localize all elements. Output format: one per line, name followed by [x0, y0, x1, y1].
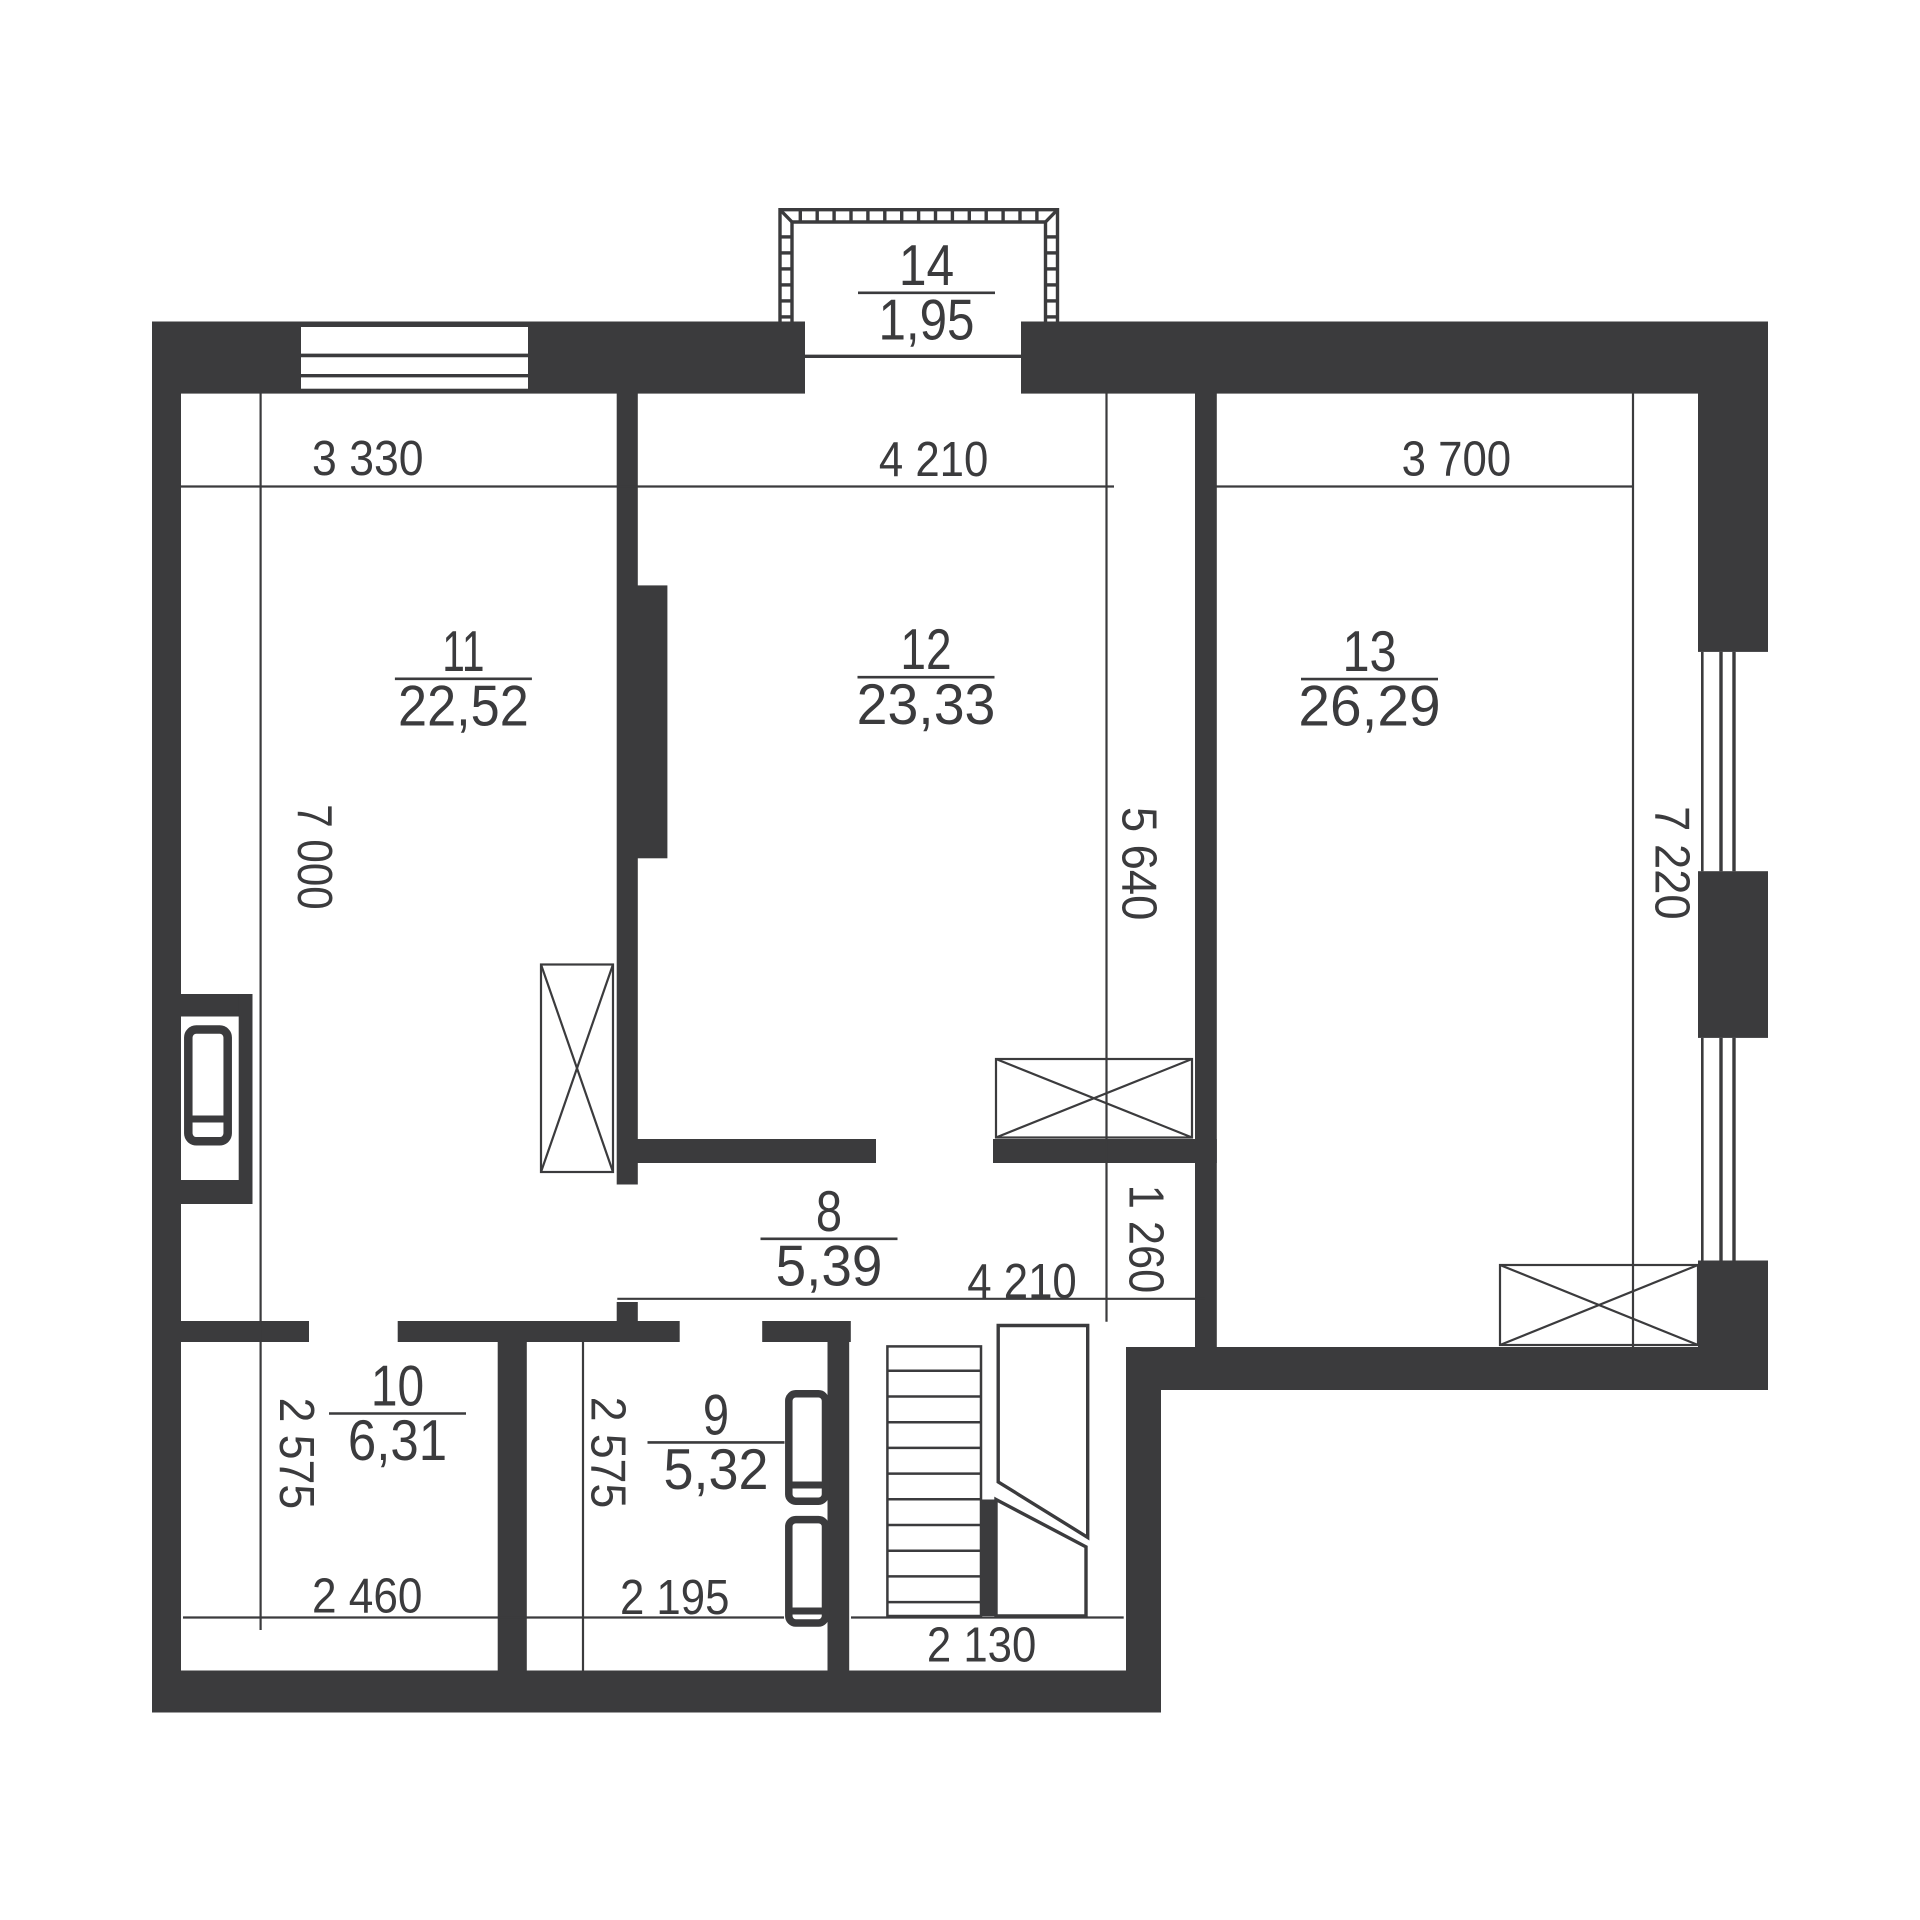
svg-text:4 210: 4 210 [879, 432, 989, 487]
svg-text:5,32: 5,32 [664, 1438, 769, 1502]
svg-text:22,52: 22,52 [398, 674, 529, 738]
svg-text:2 130: 2 130 [927, 1618, 1037, 1673]
svg-text:1 260: 1 260 [1119, 1185, 1174, 1294]
svg-text:7 220: 7 220 [1645, 806, 1700, 920]
svg-text:3 700: 3 700 [1402, 432, 1512, 487]
svg-text:4 210: 4 210 [967, 1254, 1077, 1309]
svg-text:2 575: 2 575 [269, 1398, 324, 1510]
svg-text:2 195: 2 195 [620, 1570, 730, 1625]
svg-text:5,39: 5,39 [776, 1234, 883, 1298]
svg-text:1,95: 1,95 [879, 288, 975, 352]
svg-text:26,29: 26,29 [1298, 675, 1440, 739]
svg-text:2 460: 2 460 [312, 1568, 423, 1623]
svg-text:6,31: 6,31 [348, 1409, 447, 1473]
svg-text:23,33: 23,33 [857, 673, 996, 737]
svg-text:3 330: 3 330 [312, 431, 424, 486]
svg-text:7 000: 7 000 [287, 804, 342, 910]
svg-text:5 640: 5 640 [1111, 807, 1166, 921]
svg-text:2 575: 2 575 [580, 1397, 635, 1509]
